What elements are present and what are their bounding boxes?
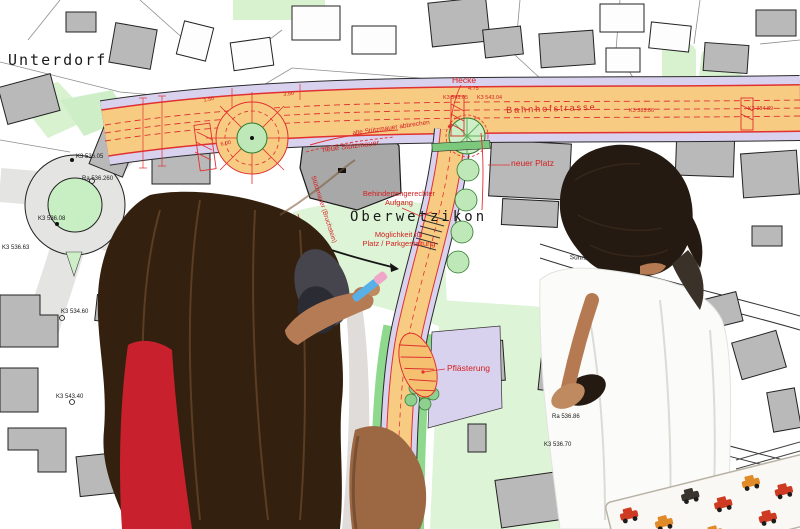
building [649,22,691,52]
building [176,21,213,61]
dimension-label: 4.75 [468,86,479,92]
boy-neck [640,263,666,275]
building [109,23,157,70]
building [428,0,490,47]
street-label-sunne: Sunne [570,254,589,262]
building [483,26,524,58]
place-label-oberwetzikon: Oberwetzikon [350,210,487,225]
photo-of-children-over-plan: Unterdorf Oberwetzikon Bahnhofstrasse Su… [0,0,800,529]
building [495,472,561,528]
annotation-moeglichkeit-2: Platz / Parkgestaltung [353,240,445,248]
annotation-hecke: Hecke [452,76,476,85]
building [741,150,800,198]
building [539,30,595,68]
building [756,10,796,36]
building [8,428,66,472]
building [66,12,96,32]
annotation-behindertengerecht: Behindertengerechter [353,190,445,198]
child-right-boy [540,145,731,529]
elevation-point: K3 536.08 [38,216,65,223]
building [230,37,274,70]
building [600,4,644,32]
elevation-point: K3 534.60 [61,309,88,316]
elevation-point: K3 536.70 [544,442,571,449]
building [606,48,640,72]
elevation-point: K3 536.63 [2,245,29,252]
road-mark: K3 543.04 [477,95,502,101]
elevation-point: K3 536.05 [76,154,103,161]
dimension-label: 3.50 [283,91,294,98]
tree-icon [457,159,479,181]
annotation-pflaesterung: Pflästerung [447,364,490,373]
road-mark: K3 384.89 [748,106,773,112]
building [501,199,558,228]
tree-icon [447,251,469,273]
building [767,388,800,432]
building [752,226,782,246]
elevation-point: Ra 536.260 [82,176,113,183]
plan-map-svg [0,0,800,529]
annotation-behindertengerecht-2: Aufgang [353,199,445,207]
elevation-point: K3 543.40 [56,394,83,401]
place-label-unterdorf: Unterdorf [8,52,107,69]
building [468,424,486,452]
building [0,368,38,412]
tree-icon [455,189,477,211]
building-neuer-platz [489,140,572,200]
annotation-neuer-platz: neuer Platz [511,159,554,168]
building [732,330,787,379]
elevation-point: Ra 536.86 [552,414,580,421]
road-mark: K3 383.86 [629,108,654,114]
annotation-moeglichkeit: Möglichkeit für [353,231,445,239]
building [352,26,396,54]
building [292,6,340,40]
road-mark: K3 543.05 [443,95,468,101]
building [703,42,749,73]
